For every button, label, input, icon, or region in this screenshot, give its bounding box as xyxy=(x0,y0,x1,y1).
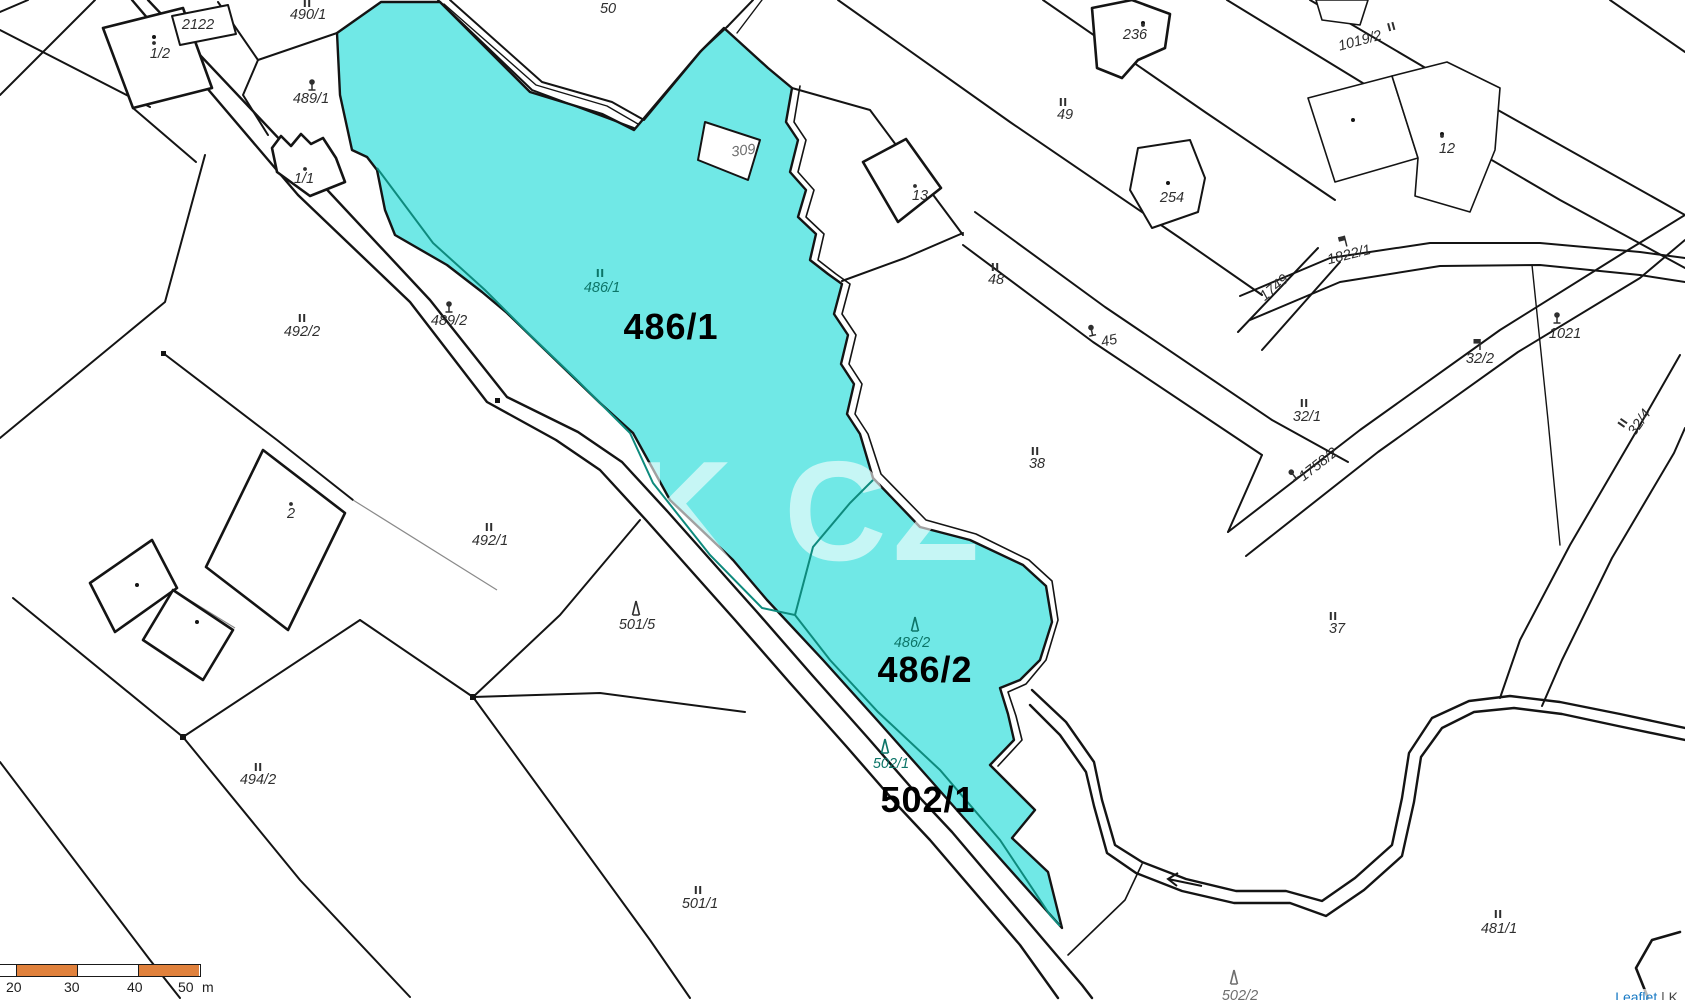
parcel-number-label: 37 xyxy=(1329,621,1346,637)
parcel-number-label: 481/1 xyxy=(1481,921,1517,937)
parcel-number-label: 49 xyxy=(1057,107,1073,123)
scale-unit: m xyxy=(202,979,214,995)
parcel-number-label: 50 xyxy=(600,1,616,17)
parcel-number-label: 1/1 xyxy=(294,171,314,187)
parcel-label: 236 xyxy=(1122,23,1148,43)
parcel-number-label: 489/2 xyxy=(431,313,467,329)
parcel-number-label: 486/1 xyxy=(584,280,620,296)
parcel-label: 309 xyxy=(730,141,756,160)
scale-segment xyxy=(138,965,199,976)
parcel-label: 2122 xyxy=(181,17,214,33)
selected-parcel-number-label: 486/2 xyxy=(877,649,972,690)
parcel-number-label: 501/5 xyxy=(619,617,656,633)
parcel-number-label: 1021 xyxy=(1549,326,1581,342)
parcel-number-label: 502/2 xyxy=(1222,988,1258,1000)
parcel-number-label: 254 xyxy=(1159,190,1184,206)
parcel-label: 1/1 xyxy=(294,167,314,187)
parcel-number-label: 309 xyxy=(730,141,756,160)
parcel-number-label: 490/1 xyxy=(290,7,326,23)
parcel-label: 13 xyxy=(912,184,928,204)
dot-symbol-icon xyxy=(1440,134,1444,138)
scale-segment xyxy=(77,965,138,976)
parcel-label: 2 xyxy=(286,502,295,522)
selected-parcel-number-label: 486/1 xyxy=(623,306,718,347)
parcel-number-label: 32/1 xyxy=(1293,409,1321,425)
parcel-number-label: 32/2 xyxy=(1466,351,1494,367)
selected-parcel-number-label: 502/1 xyxy=(880,779,975,820)
parcel-number-label: 13 xyxy=(912,188,928,204)
parcel-number-label: 494/2 xyxy=(240,772,276,788)
dot-symbol-icon xyxy=(152,41,156,45)
scale-tick: 20 xyxy=(6,979,22,995)
map-attribution: Leaflet | K xyxy=(1612,989,1681,1000)
scale-bar: 20 30 40 50 m xyxy=(0,962,230,1000)
parcel-label: 254 xyxy=(1159,190,1184,206)
parcel-number-label: 12 xyxy=(1439,141,1455,157)
parcel-number-label: 2 xyxy=(286,506,295,522)
parcel-number-label: 501/1 xyxy=(682,896,718,912)
scale-segment xyxy=(0,965,16,976)
parcel-number-label: 502/1 xyxy=(873,756,909,772)
attribution-suffix: | K xyxy=(1657,989,1678,1000)
scale-bar-segments xyxy=(0,964,201,977)
parcel-number-label: 1/2 xyxy=(150,46,170,62)
scale-segment xyxy=(16,965,77,976)
parcel-number-label: 2122 xyxy=(181,17,214,33)
parcel-number-label: 38 xyxy=(1029,456,1045,472)
scale-bar-labels: 20 30 40 50 m xyxy=(0,979,230,997)
scale-tick: 30 xyxy=(64,979,80,995)
cadastral-map-viewport[interactable]: K CZ xyxy=(0,0,1685,1000)
parcel-label: 50 xyxy=(600,1,616,17)
parcel-number-label: 489/1 xyxy=(293,91,329,107)
leaflet-attribution-link[interactable]: Leaflet xyxy=(1615,989,1657,1000)
scale-tick: 40 xyxy=(127,979,143,995)
parcel-number-label: 492/1 xyxy=(472,533,508,549)
parcel-number-label: 236 xyxy=(1122,27,1148,43)
parcel-number-label: 48 xyxy=(988,272,1004,288)
cadastral-map-canvas[interactable]: K CZ xyxy=(0,0,1685,1000)
scale-tick: 50 xyxy=(178,979,194,995)
parcel-number-label: 492/2 xyxy=(284,324,320,340)
